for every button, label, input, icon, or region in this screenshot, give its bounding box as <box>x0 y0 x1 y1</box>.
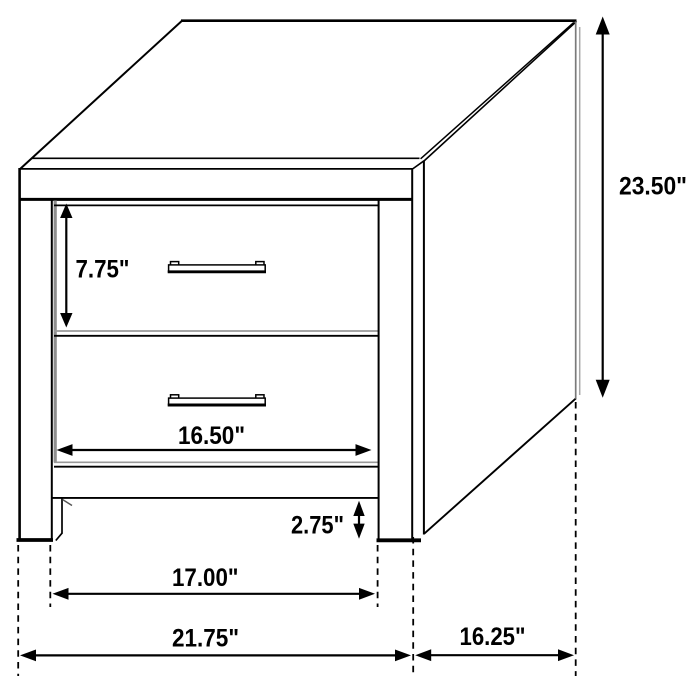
svg-text:2.75": 2.75" <box>291 512 344 540</box>
svg-text:7.75": 7.75" <box>76 256 130 284</box>
svg-text:21.75": 21.75" <box>172 625 239 653</box>
svg-text:16.25": 16.25" <box>460 623 526 651</box>
svg-text:17.00": 17.00" <box>172 564 239 592</box>
svg-text:16.50": 16.50" <box>178 422 245 450</box>
svg-text:23.50": 23.50" <box>619 173 687 201</box>
